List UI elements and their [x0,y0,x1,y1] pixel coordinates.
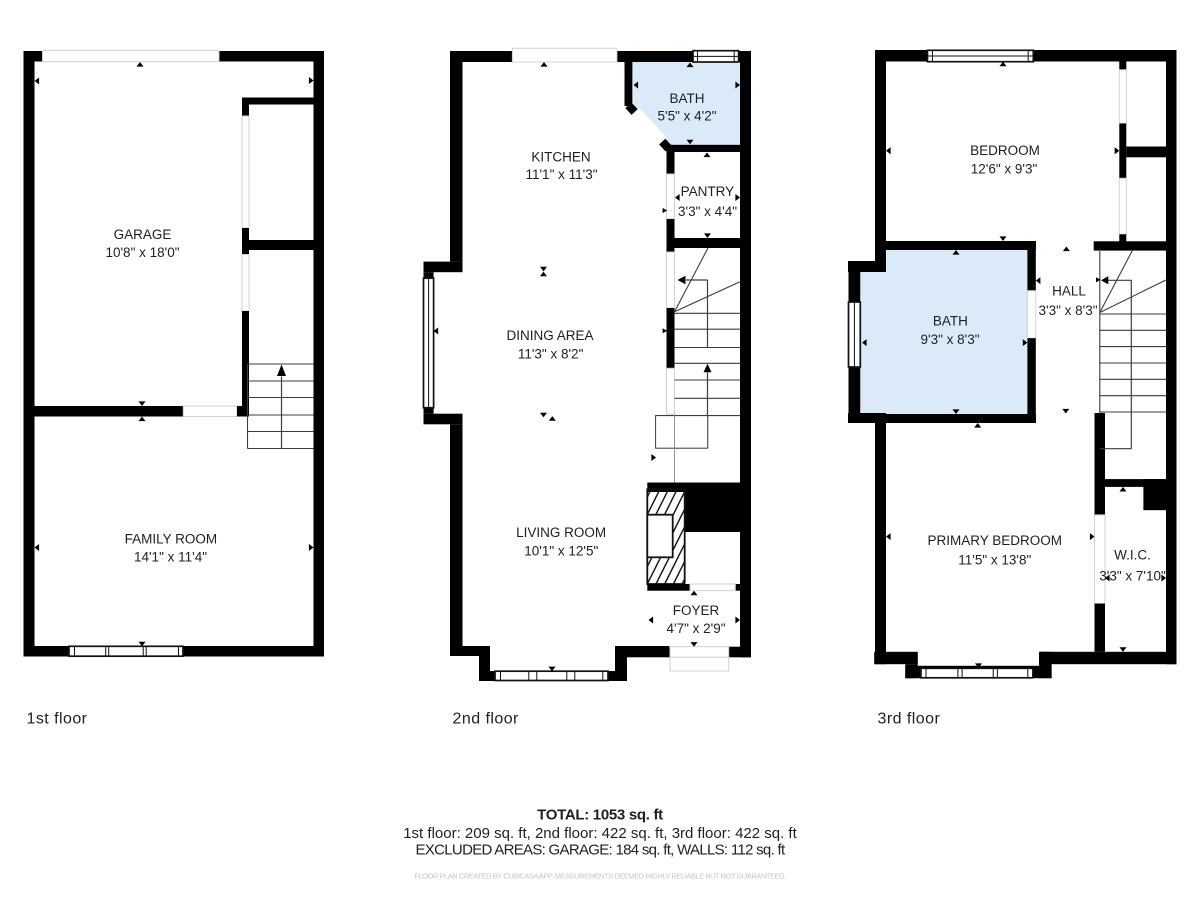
svg-text:PANTRY: PANTRY [681,184,735,199]
svg-text:2nd floor: 2nd floor [453,710,520,727]
svg-text:11'3" x 8'2": 11'3" x 8'2" [518,347,584,362]
svg-text:PRIMARY BEDROOM: PRIMARY BEDROOM [928,533,1063,548]
svg-text:11'5" x 13'8": 11'5" x 13'8" [958,552,1031,567]
svg-text:3'3" x 8'3": 3'3" x 8'3" [1038,303,1097,318]
svg-text:FAMILY ROOM: FAMILY ROOM [125,532,218,547]
svg-text:FLOOR PLAN CREATED BY CUBICASA: FLOOR PLAN CREATED BY CUBICASA APP. MEAS… [414,872,786,881]
svg-text:HALL: HALL [1052,283,1086,298]
svg-text:1st floor: 209 sq. ft, 2nd flo: 1st floor: 209 sq. ft, 2nd floor: 422 sq… [403,825,797,842]
svg-text:LIVING ROOM: LIVING ROOM [516,525,606,540]
svg-text:9'3" x 8'3": 9'3" x 8'3" [920,332,979,347]
svg-text:TOTAL: 1053 sq. ft: TOTAL: 1053 sq. ft [537,807,663,824]
svg-text:1st floor: 1st floor [27,710,88,727]
svg-text:FOYER: FOYER [673,603,720,618]
svg-text:12'6" x 9'3": 12'6" x 9'3" [971,161,1038,176]
svg-text:5'5" x 4'2": 5'5" x 4'2" [657,108,716,123]
svg-text:3rd floor: 3rd floor [878,710,941,727]
svg-text:BATH: BATH [669,91,704,106]
svg-text:10'8" x 18'0": 10'8" x 18'0" [105,245,179,260]
svg-text:10'1" x 12'5": 10'1" x 12'5" [524,543,598,558]
svg-text:GARAGE: GARAGE [114,227,172,242]
svg-text:3'3" x 7'10": 3'3" x 7'10" [1099,569,1166,584]
svg-text:W.I.C.: W.I.C. [1114,548,1151,563]
svg-text:DINING AREA: DINING AREA [506,328,593,343]
svg-text:3'3" x 4'4": 3'3" x 4'4" [678,204,737,219]
svg-text:4'7" x 2'9": 4'7" x 2'9" [666,621,725,636]
svg-text:BEDROOM: BEDROOM [970,143,1040,158]
svg-text:EXCLUDED AREAS: GARAGE: 184 sq: EXCLUDED AREAS: GARAGE: 184 sq. ft, WALL… [416,841,786,858]
svg-text:11'1" x 11'3": 11'1" x 11'3" [525,167,597,182]
svg-text:KITCHEN: KITCHEN [531,149,590,164]
svg-text:14'1" x 11'4": 14'1" x 11'4" [134,549,207,564]
svg-text:BATH: BATH [933,313,968,328]
